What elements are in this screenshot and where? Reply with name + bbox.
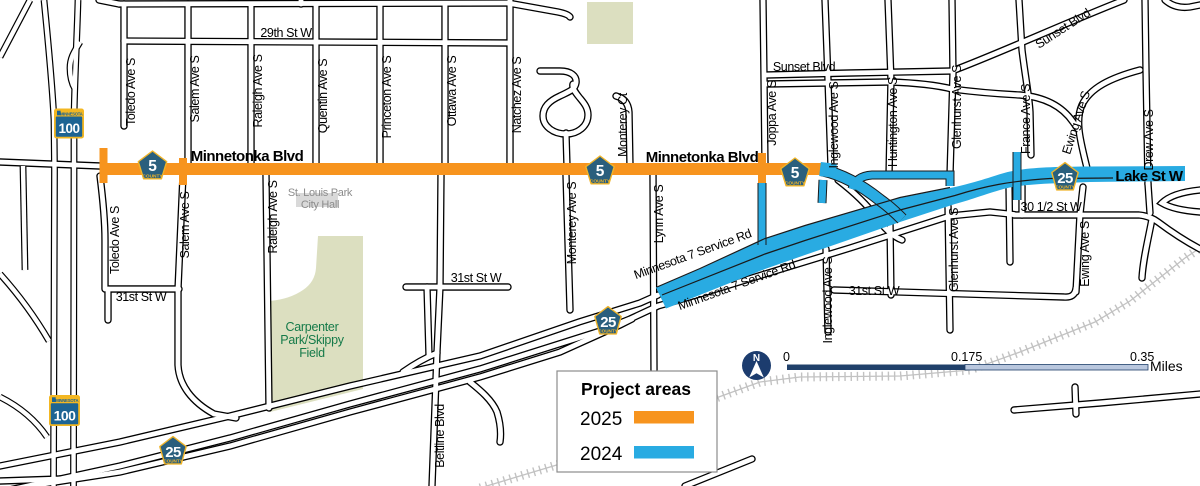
- svg-text:Project areas: Project areas: [581, 379, 691, 399]
- svg-text:5: 5: [596, 163, 605, 180]
- svg-text:29th St W: 29th St W: [260, 26, 312, 40]
- svg-text:31st St W: 31st St W: [116, 290, 167, 304]
- svg-text:Inglewood Ave S: Inglewood Ave S: [827, 81, 841, 168]
- svg-text:5: 5: [791, 165, 800, 182]
- svg-text:COUNTY: COUNTY: [598, 328, 617, 333]
- svg-text:Drew Ave S: Drew Ave S: [1142, 109, 1156, 170]
- svg-text:2025: 2025: [580, 409, 622, 430]
- svg-text:Glenhurst Ave S: Glenhurst Ave S: [947, 208, 961, 292]
- svg-text:100: 100: [54, 408, 77, 424]
- svg-text:Park/Skippy: Park/Skippy: [280, 333, 344, 347]
- svg-text:France Ave S: France Ave S: [1019, 84, 1033, 154]
- svg-text:Lynn Ave S: Lynn Ave S: [652, 185, 666, 244]
- svg-text:0: 0: [783, 350, 790, 364]
- svg-text:Natchez Ave S: Natchez Ave S: [510, 57, 524, 134]
- svg-text:COUNTY: COUNTY: [785, 181, 806, 187]
- svg-text:100: 100: [58, 121, 79, 136]
- svg-text:Salem Ave S: Salem Ave S: [178, 191, 192, 258]
- svg-text:MINNESOTA: MINNESOTA: [55, 398, 78, 403]
- svg-text:Minnetonka Blvd: Minnetonka Blvd: [191, 148, 304, 165]
- svg-text:Inglewood Ave S: Inglewood Ave S: [821, 256, 835, 343]
- svg-text:Huntington Ave S: Huntington Ave S: [886, 77, 900, 167]
- svg-text:Ottawa Ave S: Ottawa Ave S: [445, 56, 459, 127]
- svg-text:COUNTY: COUNTY: [1055, 184, 1074, 189]
- svg-text:Field: Field: [299, 346, 325, 360]
- svg-text:Quentin Ave S: Quentin Ave S: [316, 59, 330, 134]
- svg-text:31st St W: 31st St W: [849, 284, 900, 298]
- svg-text:Monterey Ave S: Monterey Ave S: [565, 182, 579, 264]
- svg-text:30 1/2 St W: 30 1/2 St W: [1021, 200, 1083, 214]
- svg-text:COUNTY: COUNTY: [163, 458, 182, 463]
- svg-text:Toledo Ave S: Toledo Ave S: [124, 58, 138, 126]
- svg-text:5: 5: [148, 158, 157, 175]
- svg-text:Ewing Ave S: Ewing Ave S: [1078, 221, 1092, 287]
- svg-text:City Hall: City Hall: [301, 199, 339, 211]
- svg-text:MINNESOTA: MINNESOTA: [60, 111, 83, 116]
- svg-text:Carpenter: Carpenter: [286, 320, 339, 334]
- svg-text:0.175: 0.175: [951, 350, 982, 364]
- svg-text:Salem Ave S: Salem Ave S: [188, 55, 202, 122]
- svg-text:Princeton Ave S: Princeton Ave S: [380, 56, 394, 139]
- svg-text:Glenhurst Ave S: Glenhurst Ave S: [950, 65, 964, 149]
- svg-text:COUNTY: COUNTY: [590, 179, 611, 185]
- svg-text:COUNTY: COUNTY: [142, 174, 163, 180]
- svg-text:Lake St W: Lake St W: [1115, 168, 1184, 185]
- svg-text:Monterey Ct: Monterey Ct: [616, 92, 630, 157]
- svg-text:2024: 2024: [580, 444, 623, 465]
- svg-text:Joppa Ave S: Joppa Ave S: [765, 80, 779, 146]
- svg-text:Sunset Blvd: Sunset Blvd: [773, 60, 836, 74]
- svg-text:Beltline Blvd: Beltline Blvd: [433, 404, 447, 468]
- svg-text:Minnetonka Blvd: Minnetonka Blvd: [646, 149, 759, 166]
- svg-text:31st St W: 31st St W: [451, 271, 502, 285]
- svg-text:St. Louis Park: St. Louis Park: [288, 187, 353, 199]
- svg-text:Toledo Ave S: Toledo Ave S: [108, 206, 122, 274]
- svg-text:Miles: Miles: [1150, 358, 1183, 374]
- svg-text:Raleigh Ave S: Raleigh Ave S: [251, 54, 265, 127]
- svg-text:Raleigh Ave S: Raleigh Ave S: [266, 180, 280, 253]
